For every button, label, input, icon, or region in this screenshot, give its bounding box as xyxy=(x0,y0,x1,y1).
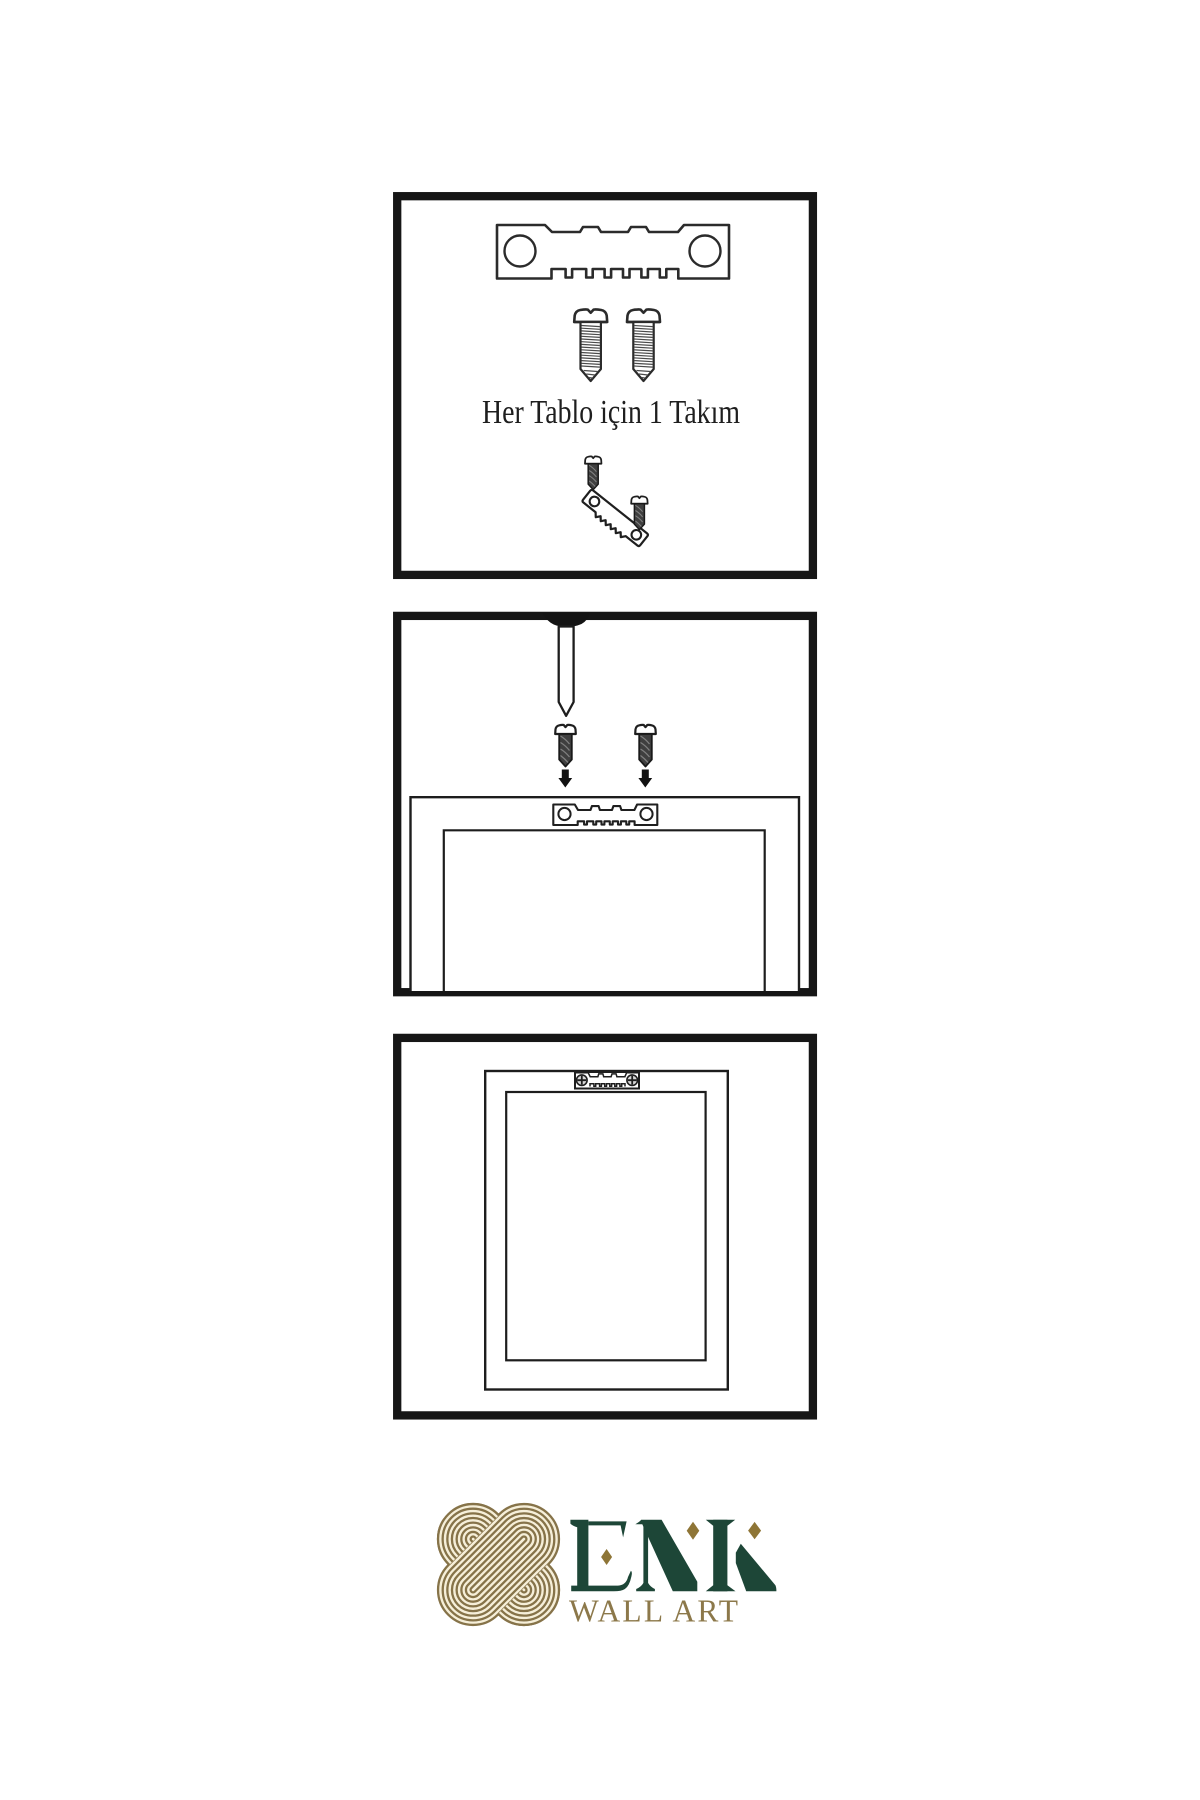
svg-text:WALL ART: WALL ART xyxy=(569,1594,738,1629)
svg-text:Her Tablo için 1 Takım: Her Tablo için 1 Takım xyxy=(482,394,740,431)
